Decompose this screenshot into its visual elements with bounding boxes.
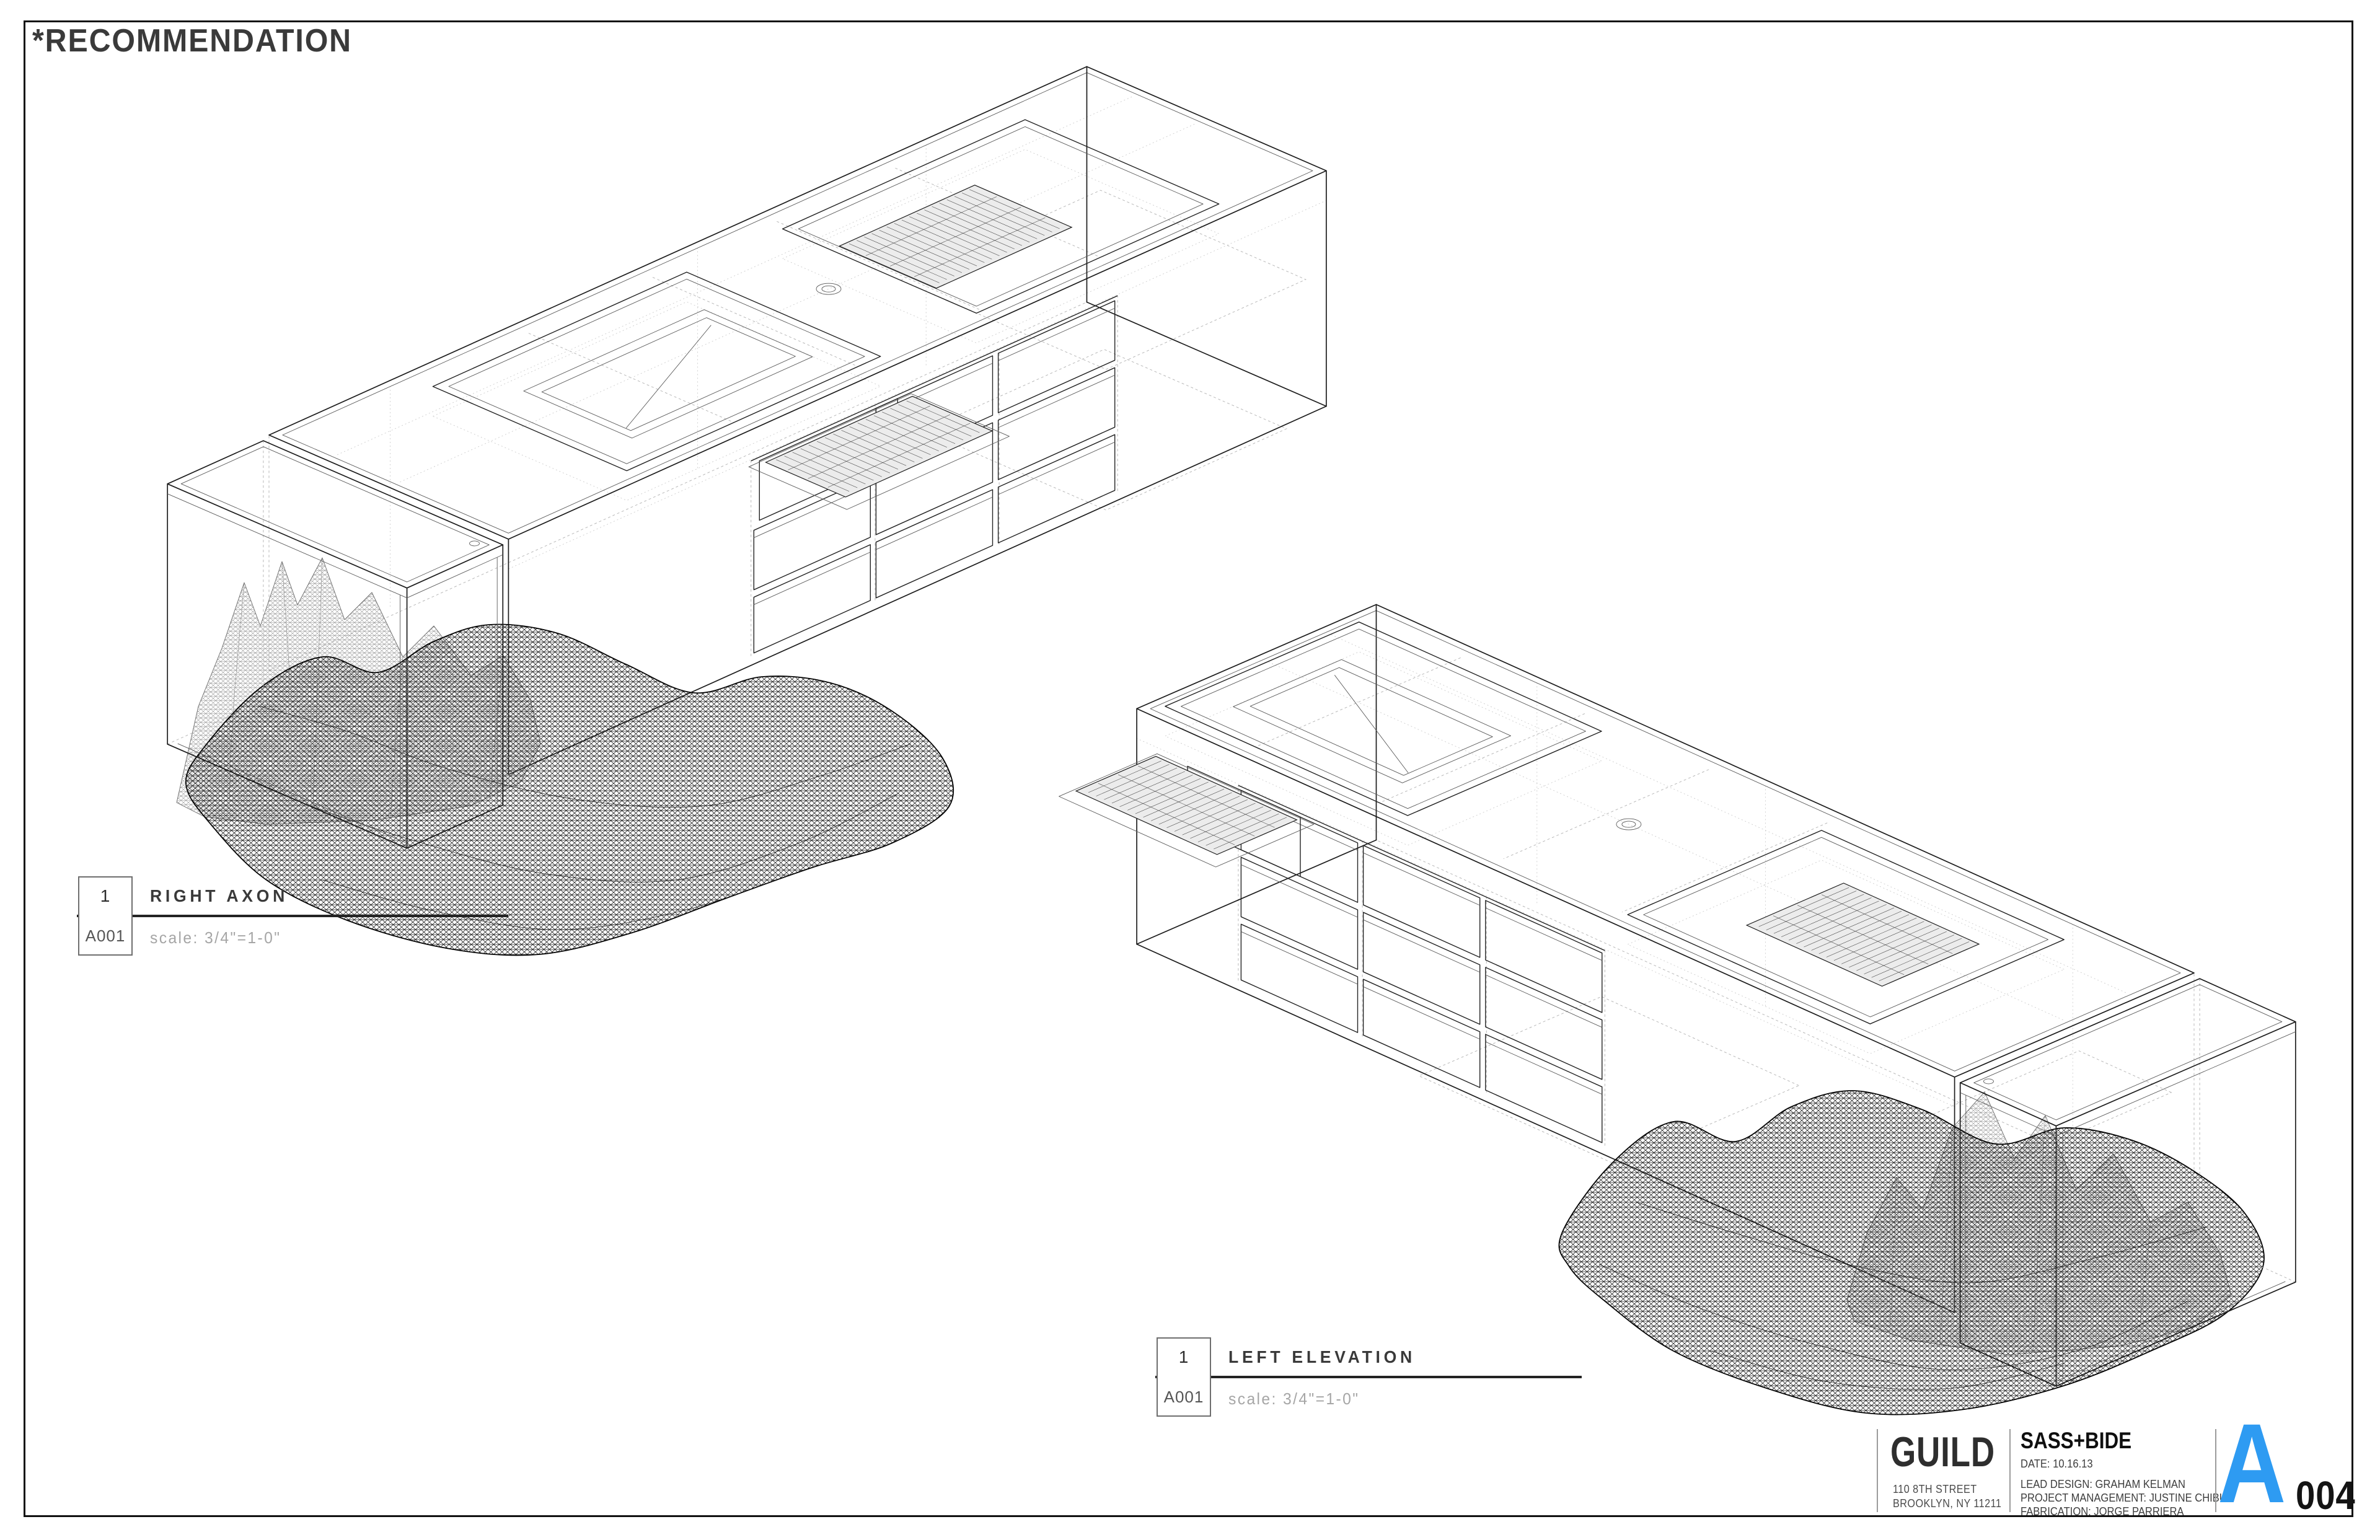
credit-project-management: PROJECT MANAGEMENT: JUSTINE CHIBUK xyxy=(2021,1491,2234,1505)
recessed-keyboard xyxy=(1747,883,1979,986)
monitor-recess xyxy=(1165,622,1602,816)
drawings-canvas xyxy=(0,0,2380,1540)
viewport-rule xyxy=(1155,1376,1582,1378)
date-line: DATE: 10.16.13 xyxy=(2021,1458,2093,1471)
sheet-title: *RECOMMENDATION xyxy=(32,22,352,59)
viewport-scale-note: scale: 3/4"=1-0" xyxy=(1228,1389,1359,1409)
sheet-series-letter: A xyxy=(2218,1407,2286,1520)
viewport-rule xyxy=(77,915,508,917)
grommet xyxy=(816,283,841,294)
viewport-title: LEFT ELEVATION xyxy=(1228,1347,1416,1367)
title-block-divider xyxy=(2215,1429,2216,1512)
mesh-floor-spill xyxy=(1559,1091,2264,1415)
tray-keyboard xyxy=(1076,756,1297,855)
viewport-number-box: 1 A001 xyxy=(78,876,133,956)
viewport-sheet-ref: A001 xyxy=(79,918,131,953)
credit-fabrication: FABRICATION: JORGE PARRIERA xyxy=(2021,1505,2234,1518)
mesh-floor-spill xyxy=(186,625,953,956)
viewport-number: 1 xyxy=(79,878,131,915)
recessed-keyboard xyxy=(839,185,1072,288)
viewport-sheet-ref: A001 xyxy=(1158,1379,1210,1414)
firm-address-line2: BROOKLYN, NY 11211 xyxy=(1893,1497,2001,1511)
credit-lines: LEAD DESIGN: GRAHAM KELMAN PROJECT MANAG… xyxy=(2021,1477,2234,1518)
left-elevation-drawing xyxy=(1059,605,2296,1415)
firm-address: 110 8TH STREET BROOKLYN, NY 11211 xyxy=(1893,1482,2001,1511)
firm-name: GUILD xyxy=(1890,1428,1995,1476)
firm-address-line1: 110 8TH STREET xyxy=(1893,1482,2001,1497)
sheet-number: 004 xyxy=(2296,1472,2356,1518)
viewport-scale-note: scale: 3/4"=1-0" xyxy=(150,928,281,948)
case-pin xyxy=(1983,1079,1993,1084)
title-block: GUILD 110 8TH STREET BROOKLYN, NY 11211 … xyxy=(1877,1427,2355,1515)
viewport-title: RIGHT AXON xyxy=(150,886,288,906)
drawing-sheet: { "sheet": { "title": "*RECOMMENDATION" … xyxy=(0,0,2380,1540)
title-block-divider xyxy=(2009,1429,2011,1512)
credit-lead-design: LEAD DESIGN: GRAHAM KELMAN xyxy=(2021,1477,2234,1491)
viewport-number-box: 1 A001 xyxy=(1157,1337,1211,1417)
title-block-divider xyxy=(1877,1429,1878,1512)
viewport-number: 1 xyxy=(1158,1339,1210,1376)
tray-keyboard xyxy=(766,396,992,497)
project-name: SASS+BIDE xyxy=(2021,1428,2131,1454)
case-pin xyxy=(470,541,480,546)
